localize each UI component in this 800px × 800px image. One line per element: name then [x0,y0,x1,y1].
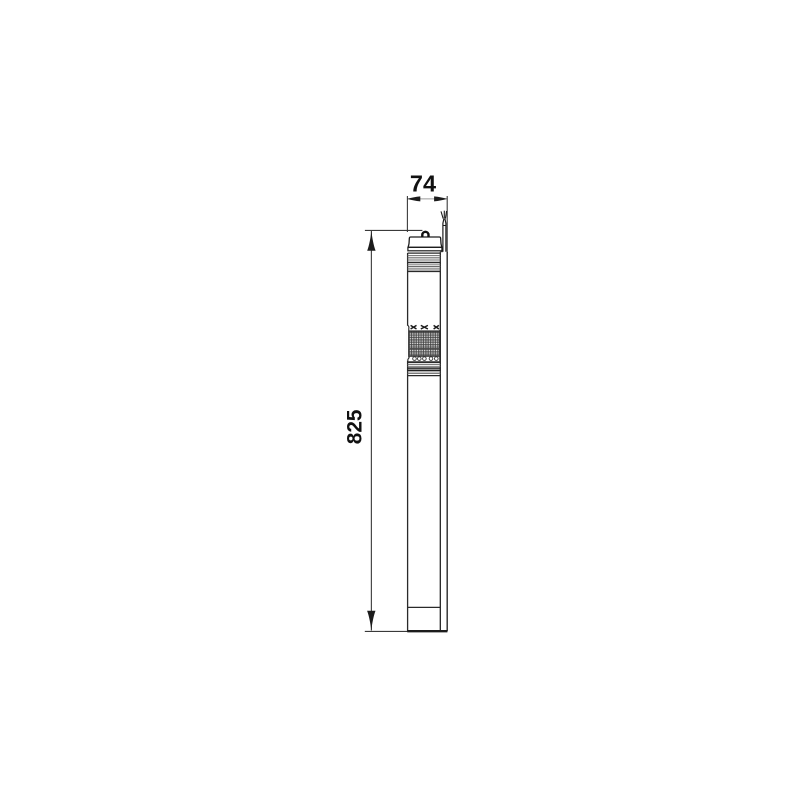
svg-text:74: 74 [410,170,436,196]
svg-text:825: 825 [343,410,366,445]
